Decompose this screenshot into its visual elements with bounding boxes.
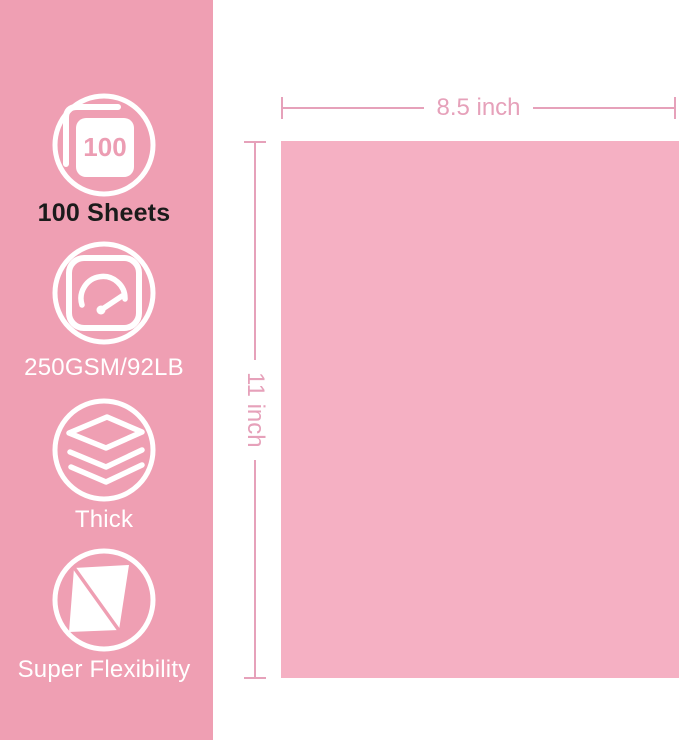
flexibility-sheet-icon bbox=[52, 548, 156, 652]
gsm-gauge-icon bbox=[52, 241, 156, 345]
height-dimension-top-line bbox=[254, 143, 256, 360]
height-dimension-label: 11 inch bbox=[241, 360, 269, 460]
paper-sheet-swatch bbox=[281, 141, 679, 678]
feature-label-flexibility: Super Flexibility bbox=[0, 656, 208, 684]
width-dimension-right-line bbox=[533, 107, 674, 109]
height-dimension-bottom-line bbox=[254, 460, 256, 677]
height-dimension-bottom-tick bbox=[244, 677, 266, 679]
width-dimension-label: 8.5 inch bbox=[424, 94, 532, 122]
feature-label-weight: 250GSM/92LB bbox=[0, 354, 208, 382]
sheet-count-icon: 100 bbox=[52, 93, 156, 197]
width-dimension: 8.5 inch bbox=[281, 97, 676, 119]
thickness-layers-icon bbox=[52, 398, 156, 502]
width-dimension-left-line bbox=[283, 107, 424, 109]
feature-label-thick: Thick bbox=[0, 506, 208, 534]
sheet-count-badge: 100 bbox=[83, 132, 126, 162]
feature-sidebar: 100 100 Sheets 250GSM/92LB Thick Super F… bbox=[0, 0, 213, 740]
height-dimension: 11 inch bbox=[244, 141, 266, 679]
feature-label-sheets: 100 Sheets bbox=[0, 199, 208, 227]
width-dimension-right-tick bbox=[674, 97, 676, 119]
